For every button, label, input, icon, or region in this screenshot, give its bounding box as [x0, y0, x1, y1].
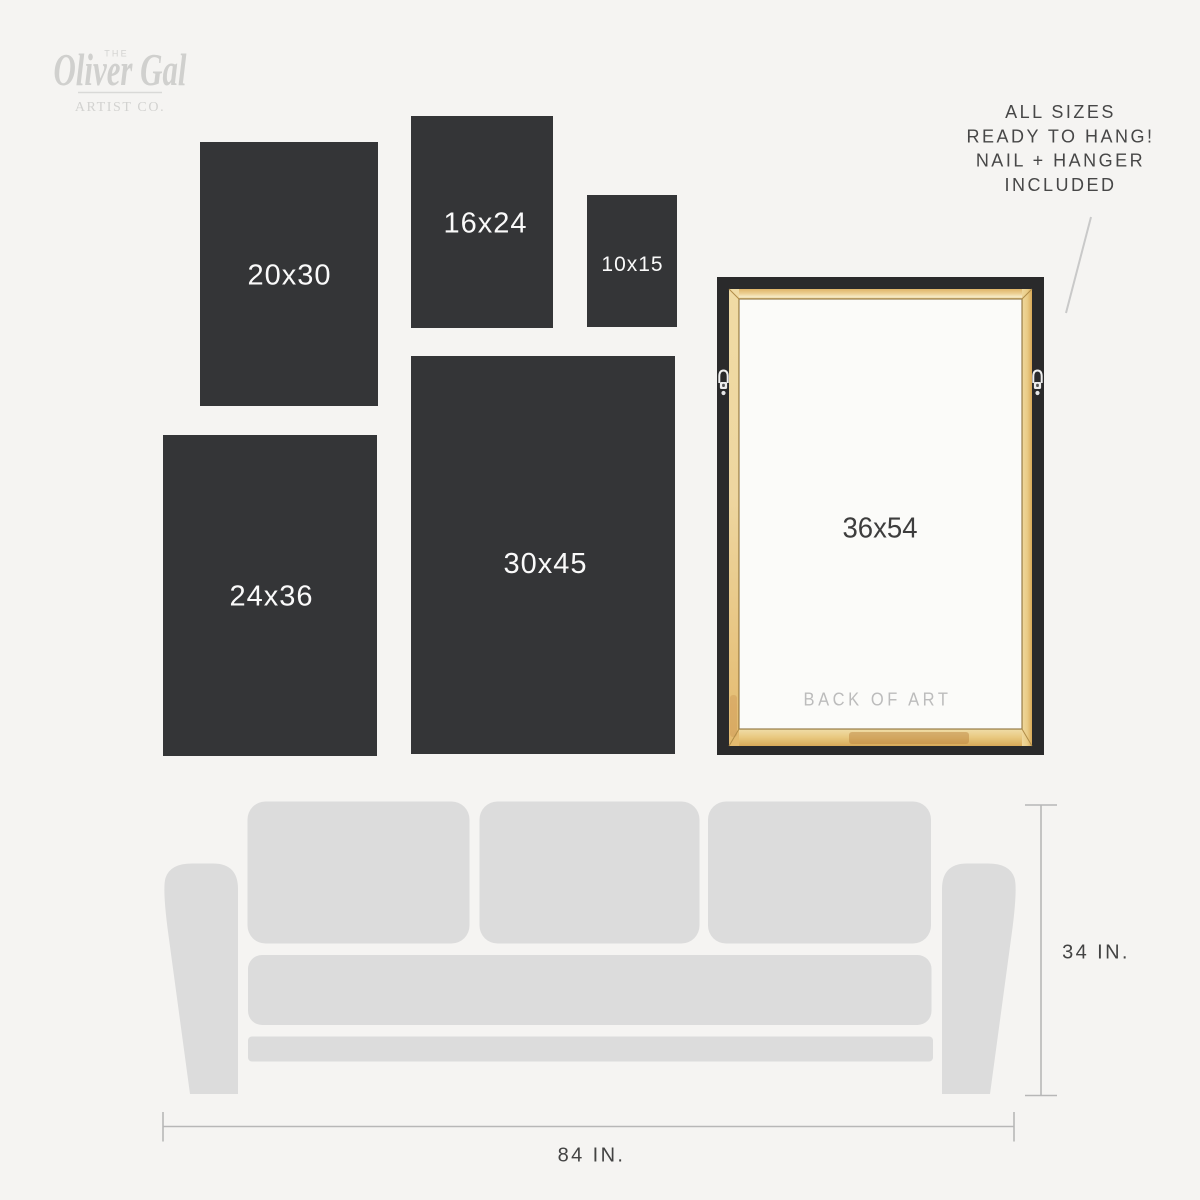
svg-text:36x54: 36x54: [843, 513, 918, 545]
svg-text:16x24: 16x24: [443, 208, 527, 240]
svg-text:ARTIST CO.: ARTIST CO.: [75, 100, 165, 115]
svg-text:INCLUDED: INCLUDED: [1004, 175, 1116, 195]
svg-text:10x15: 10x15: [601, 253, 663, 276]
svg-text:24x36: 24x36: [229, 581, 313, 613]
svg-text:34 IN.: 34 IN.: [1062, 942, 1130, 964]
svg-text:30x45: 30x45: [503, 548, 587, 580]
svg-text:BACK OF ART: BACK OF ART: [804, 689, 952, 710]
svg-text:READY TO HANG!: READY TO HANG!: [966, 126, 1154, 146]
svg-text:ALL SIZES: ALL SIZES: [1005, 102, 1116, 122]
svg-text:84 IN.: 84 IN.: [558, 1145, 626, 1167]
svg-text:NAIL + HANGER: NAIL + HANGER: [976, 151, 1145, 171]
svg-text:20x30: 20x30: [247, 260, 331, 292]
svg-text:Oliver Gal: Oliver Gal: [54, 45, 187, 95]
